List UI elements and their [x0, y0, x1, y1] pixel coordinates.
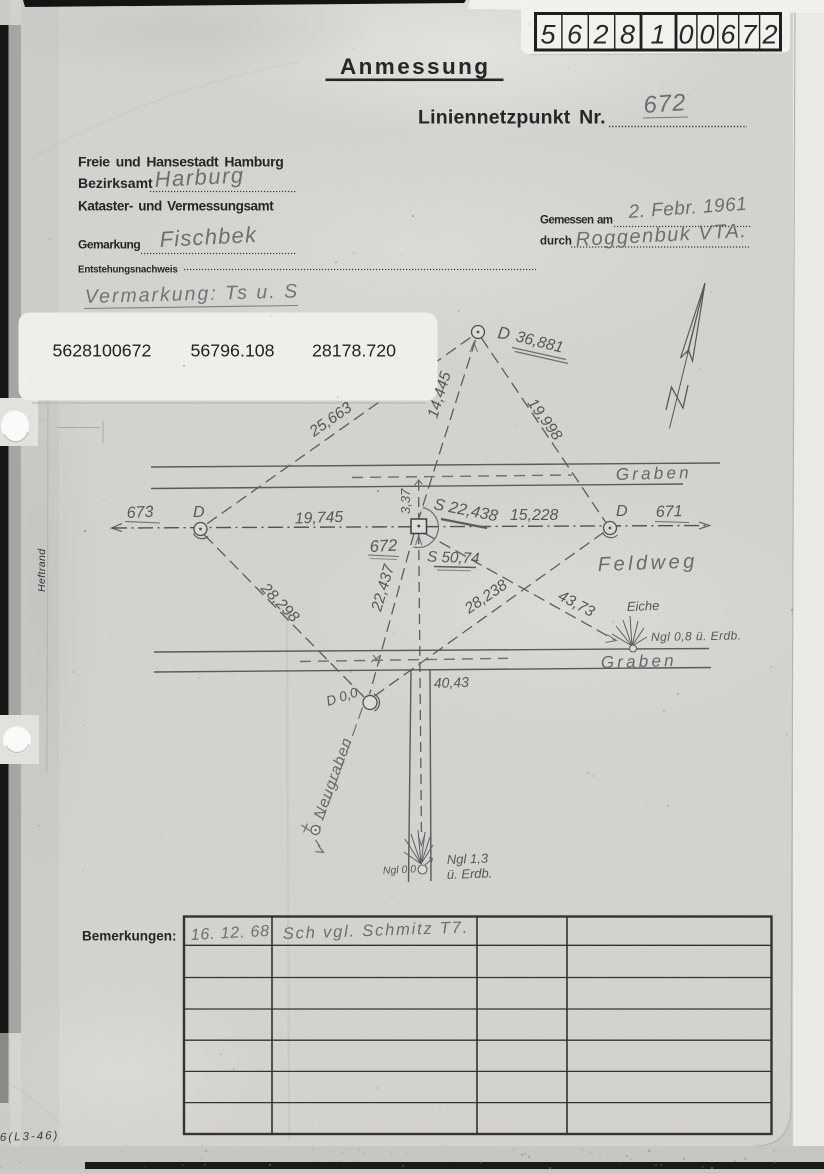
svg-text:D: D	[193, 504, 205, 521]
svg-text:Fischbek: Fischbek	[159, 222, 258, 252]
svg-text:1: 1	[650, 20, 665, 50]
svg-text:Gemessen am: Gemessen am	[540, 215, 613, 227]
svg-text:40,43: 40,43	[434, 674, 470, 691]
svg-text:Harburg: Harburg	[154, 162, 245, 192]
svg-text:6: 6	[720, 20, 736, 50]
svg-text:Anmessung: Anmessung	[340, 54, 490, 79]
svg-text:Bezirksamt: Bezirksamt	[78, 175, 153, 191]
svg-text:56796.108: 56796.108	[191, 341, 275, 361]
svg-text:Ngl 0,0: Ngl 0,0	[383, 863, 417, 877]
svg-text:Liniennetzpunkt Nr.: Liniennetzpunkt Nr.	[418, 107, 606, 129]
svg-text:672: 672	[369, 537, 397, 556]
svg-text:671: 671	[656, 503, 683, 521]
svg-text:7: 7	[741, 20, 757, 50]
svg-text:0: 0	[678, 20, 693, 50]
svg-text:6(L3-46): 6(L3-46)	[0, 1130, 60, 1144]
svg-text:Ngl 1,3: Ngl 1,3	[447, 851, 489, 867]
svg-text:673: 673	[126, 504, 154, 522]
svg-text:Eiche: Eiche	[627, 598, 660, 614]
svg-text:Graben: Graben	[601, 651, 677, 672]
svg-text:2: 2	[592, 20, 608, 50]
svg-text:672: 672	[643, 89, 688, 119]
svg-text:S 50,74: S 50,74	[427, 549, 480, 568]
svg-text:Heftrand: Heftrand	[36, 548, 48, 592]
svg-text:Bemerkungen:: Bemerkungen:	[82, 929, 177, 944]
svg-text:3,37: 3,37	[398, 488, 413, 514]
svg-text:Graben: Graben	[616, 463, 692, 484]
svg-text:Ngl 0,8 ü. Erdb.: Ngl 0,8 ü. Erdb.	[651, 628, 742, 644]
svg-text:5: 5	[540, 20, 556, 50]
svg-text:0: 0	[699, 20, 714, 50]
svg-text:Gemarkung: Gemarkung	[78, 238, 140, 252]
svg-text:8: 8	[620, 20, 635, 50]
svg-text:ü. Erdb.: ü. Erdb.	[447, 865, 493, 882]
svg-text:2: 2	[761, 20, 777, 50]
svg-text:6: 6	[567, 20, 583, 50]
svg-text:Entstehungsnachweis: Entstehungsnachweis	[78, 265, 178, 276]
svg-text:19,745: 19,745	[295, 509, 344, 528]
svg-text:Feldweg: Feldweg	[597, 551, 698, 576]
svg-text:D: D	[496, 323, 511, 344]
svg-text:Kataster- und Vermessungsamt: Kataster- und Vermessungsamt	[78, 199, 274, 214]
svg-text:28178.720: 28178.720	[312, 341, 396, 361]
svg-text:15,228: 15,228	[510, 507, 559, 524]
svg-text:durch: durch	[540, 236, 572, 248]
svg-text:5628100672: 5628100672	[53, 341, 152, 361]
svg-text:D: D	[616, 503, 628, 520]
